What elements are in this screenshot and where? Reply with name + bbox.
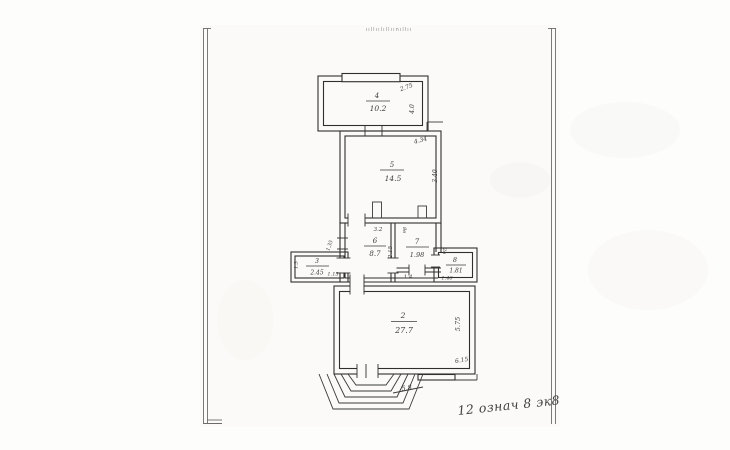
room-7-number: 7 [415, 238, 420, 246]
room8-door-mark: 2в [441, 247, 447, 254]
room7-door-mark: 8в [401, 227, 407, 233]
room-2-area: 27.7 [394, 326, 414, 335]
dim-room4-side: 4.0 [409, 104, 416, 115]
floor-plan-svg: ııllıılıllıınıllıı [0, 0, 730, 450]
room-5-area: 14.5 [385, 174, 402, 183]
dim-room6-top: 3.2 [374, 227, 383, 233]
room-3-number: 3 [315, 257, 319, 265]
room-8-area: 1.81 [449, 268, 462, 275]
top-caption-text: ııllıılıllıınıllıı [366, 27, 413, 33]
room-6-number: 6 [373, 237, 378, 245]
dim-room3-bottom: 1.15 [327, 272, 338, 278]
dim-porch: 5.8 [401, 383, 412, 392]
dim-room2-side: 5.75 [454, 317, 462, 331]
dim-room3-side: 1.3 [294, 261, 300, 269]
scanned-floor-plan-page: ııllıılıllıınıllıı [0, 0, 730, 450]
room-5-number: 5 [390, 161, 395, 169]
room-8-number: 8 [453, 256, 457, 264]
room-3-area: 2.45 [309, 270, 324, 277]
room-6-area: 8.7 [369, 250, 381, 258]
scan-page-area [200, 25, 560, 427]
room-4-number: 4 [374, 92, 379, 100]
dim-divider-6-7: 2.15 [388, 245, 394, 259]
room-7-area: 1.98 [410, 251, 424, 259]
dim-room5-side: 3.40 [432, 169, 439, 183]
room-2-number: 2 [400, 311, 406, 320]
dim-room7-bottom: 1.4 [404, 275, 413, 281]
dim-room8-bottom: 1.46 [441, 276, 453, 282]
room-4-area: 10.2 [370, 104, 387, 113]
